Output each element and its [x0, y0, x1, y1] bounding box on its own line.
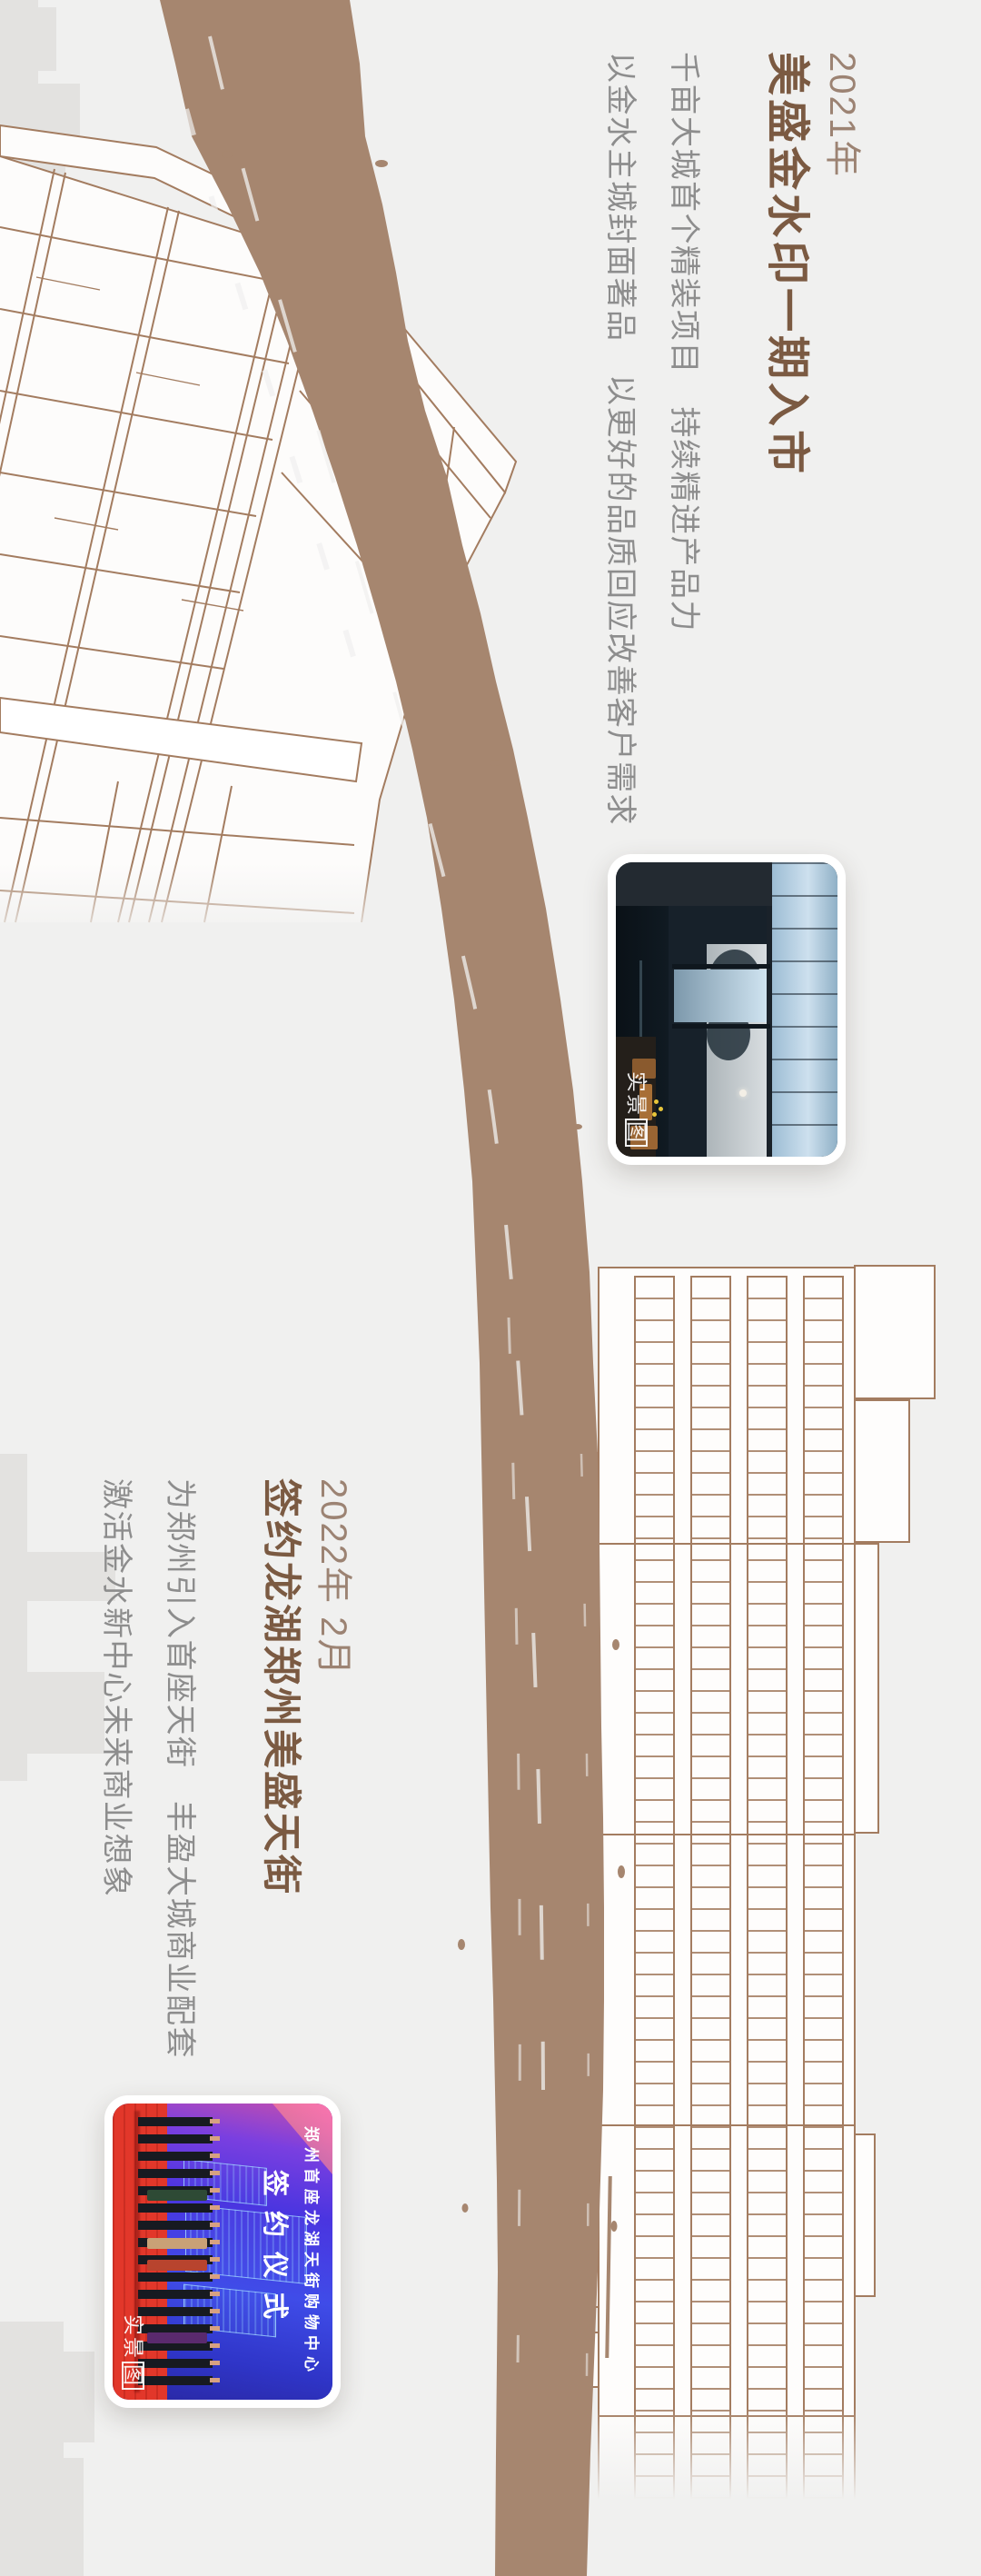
section-title: 美盛金水印一期入市 [762, 52, 812, 477]
building-sketch-top-left [0, 91, 545, 963]
building-fade-top [0, 863, 418, 972]
photo-watermark: 实景图 [122, 2314, 145, 2392]
crowd-row [138, 2113, 213, 2391]
section-title: 签约龙湖郑州美盛天街 [258, 1478, 303, 1896]
photo-courtyard: 实景图 [608, 854, 846, 1165]
photo-signing-ceremony: 郑州首座龙湖天街购物中心 签约仪式 实景图 [104, 2095, 341, 2408]
photo-watermark: 实景图 [625, 1071, 649, 1149]
timeline-section-2021: 2021年 美盛金水印一期入市 千亩大城首个精装项目 持续精进产品力 以金水主城… [590, 52, 863, 851]
section-year: 2021年 [821, 52, 863, 178]
section-year: 2022年 2月 [312, 1478, 354, 1676]
glass-canopy [767, 862, 837, 1157]
section-body: 千亩大城首个精装项目 持续精进产品力 以金水主城封面著品 以更好的品质回应改善客… [589, 52, 716, 826]
screen-subtitle: 签约仪式 [258, 2104, 296, 2400]
photo-ceremony-image: 郑州首座龙湖天街购物中心 签约仪式 [113, 2104, 332, 2400]
body-line: 为郑州引入首座天街 丰盈大城商业配套 [148, 1478, 212, 2059]
section-body: 为郑州引入首座天街 丰盈大城商业配套 激活金水新中心未来商业想象 [84, 1478, 212, 2059]
poster-canvas: 2021年 美盛金水印一期入市 千亩大城首个精装项目 持续精进产品力 以金水主城… [0, 0, 981, 2576]
body-line: 激活金水新中心未来商业想象 [84, 1478, 148, 2059]
body-line: 千亩大城首个精装项目 持续精进产品力 [652, 52, 716, 826]
timeline-section-2022: 2022年 2月 签约龙湖郑州美盛天街 为郑州引入首座天街 丰盈大城商业配套 激… [109, 1478, 354, 2105]
photo-courtyard-image [616, 862, 837, 1157]
screen-title: 郑州首座龙湖天街购物中心 [302, 2104, 324, 2400]
building-fade-bottom [545, 2408, 963, 2535]
building-sketch-bottom-right [563, 1261, 945, 2526]
body-line: 以金水主城封面著品 以更好的品质回应改善客户需求 [589, 52, 652, 826]
